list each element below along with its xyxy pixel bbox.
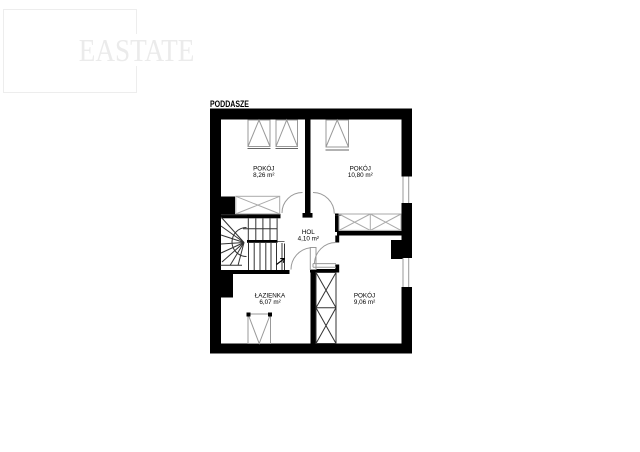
svg-text:PODDASZE: PODDASZE [210, 99, 249, 109]
svg-text:9,06 m²: 9,06 m² [354, 299, 375, 306]
svg-text:6,07 m²: 6,07 m² [259, 299, 280, 306]
svg-text:10,80 m²: 10,80 m² [348, 172, 373, 179]
svg-text:8,26 m²: 8,26 m² [253, 172, 274, 179]
svg-text:4,10 m²: 4,10 m² [298, 236, 319, 243]
